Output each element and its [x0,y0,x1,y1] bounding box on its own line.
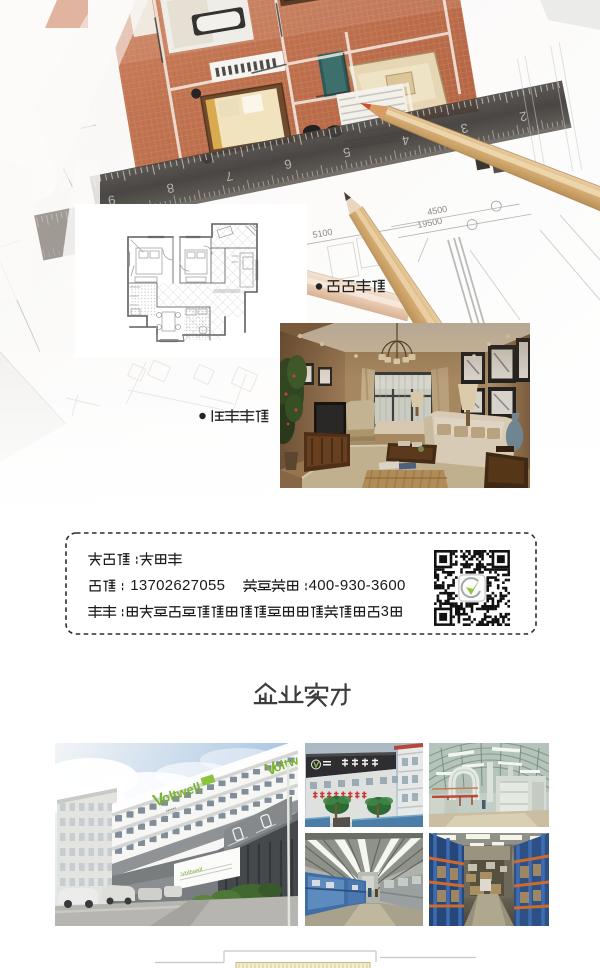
svg-text:400-930-3600: 400-930-3600 [309,577,406,594]
svg-text:13702627055: 13702627055 [130,577,225,594]
svg-text:3: 3 [381,604,389,620]
